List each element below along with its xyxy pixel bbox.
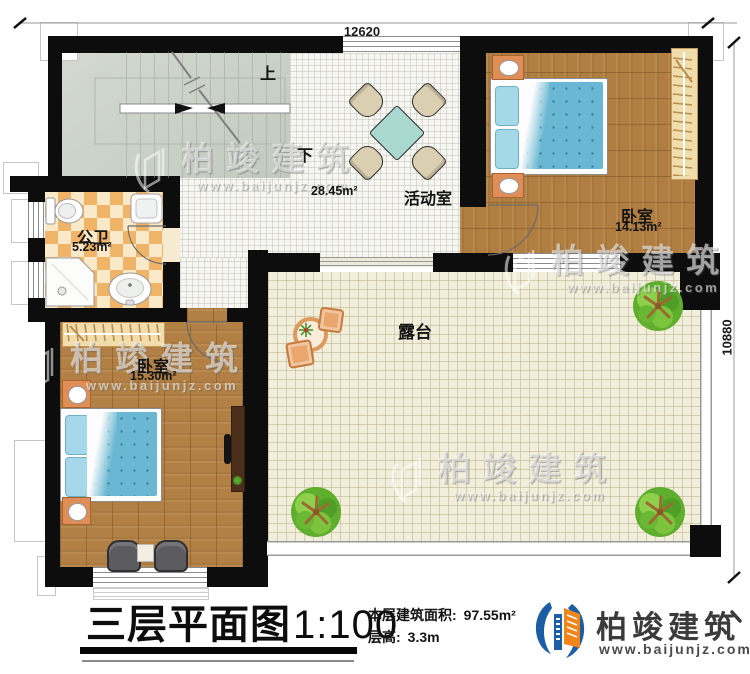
floor-area-label: 本层建筑面积:: [368, 607, 457, 623]
bed: [60, 408, 162, 502]
staircase-floor: [62, 52, 290, 178]
plant-icon: [233, 476, 242, 485]
blanket-fold: [519, 82, 549, 169]
wall-segment: [680, 253, 720, 310]
terrace-railing: [267, 541, 692, 556]
wall-segment: [48, 36, 343, 53]
chair: [285, 339, 315, 369]
dimension-right-label: 10880: [720, 308, 735, 368]
bedroom-bottom-area: 15.30m²: [130, 369, 177, 383]
wall-segment: [268, 253, 320, 272]
wall-segment: [248, 250, 268, 310]
wall-segment: [243, 308, 268, 567]
pillow: [65, 415, 89, 455]
terrace-label: 露台: [398, 318, 432, 343]
floor-area-row: 本层建筑面积:97.55m²: [368, 604, 516, 626]
terrace-column: [690, 525, 721, 557]
floor-height-label: 层高:: [368, 629, 401, 645]
floor-plan-canvas: 柏竣建筑www.baijunjz.com 柏竣建筑www.baijunjz.co…: [0, 0, 750, 674]
chair: [317, 306, 344, 333]
wall-segment: [433, 253, 513, 272]
wall-segment: [10, 176, 180, 192]
window: [513, 253, 620, 272]
wall-segment: [48, 36, 62, 185]
bedroom-top-area: 14.13m²: [615, 220, 662, 234]
chair: [107, 540, 141, 572]
wall-segment: [45, 322, 60, 587]
stairs-up-label: 上: [260, 60, 276, 84]
wall-segment: [460, 36, 486, 207]
wardrobe: [671, 48, 698, 180]
plan-title: 三层平面图1:100: [86, 592, 398, 650]
floor-height-value: 3.3m: [408, 629, 440, 645]
pillow: [495, 86, 519, 126]
window: [28, 202, 45, 238]
bedroom-bottom-door-threshold: [187, 308, 227, 324]
wall-segment: [163, 192, 180, 228]
wall-segment: [45, 567, 93, 587]
nightstand: [62, 497, 91, 525]
wall-segment: [207, 567, 268, 587]
bathroom-area: 5.23m²: [72, 240, 112, 254]
wall-segment: [28, 308, 187, 322]
wardrobe: [62, 322, 165, 347]
tv: [224, 434, 231, 464]
bedroom-top-door-threshold: [460, 205, 486, 255]
title-underline-thin: [82, 660, 354, 662]
stairs-down-label: 下: [297, 142, 313, 166]
brand-logo-icon: [528, 596, 594, 664]
nightstand: [62, 380, 91, 408]
title-underline: [80, 647, 357, 654]
nightstand: [492, 173, 524, 198]
hallway-floor: [180, 258, 248, 310]
activity-room-label: 活动室: [404, 185, 452, 209]
window-sill: [14, 440, 46, 542]
dimension-top-label: 12620: [334, 24, 390, 39]
brand-url: www.baijunjz.com: [599, 641, 750, 657]
pillow: [495, 129, 519, 169]
window: [28, 262, 45, 298]
pillow: [65, 457, 89, 497]
chair: [154, 540, 188, 572]
sliding-door: [320, 257, 433, 267]
floor-area-value: 97.55m²: [464, 607, 516, 623]
bed: [490, 78, 608, 175]
bathroom-door-threshold: [163, 226, 180, 262]
side-table: [137, 544, 154, 562]
floor-height-row: 层高:3.3m: [368, 626, 516, 648]
blanket-fold: [87, 412, 117, 496]
plan-info: 本层建筑面积:97.55m² 层高:3.3m: [368, 604, 516, 648]
terrace-railing: [700, 310, 712, 526]
activity-room-area: 28.45m²: [311, 184, 358, 198]
nightstand: [492, 55, 524, 80]
plan-title-text: 三层平面图: [86, 603, 291, 647]
